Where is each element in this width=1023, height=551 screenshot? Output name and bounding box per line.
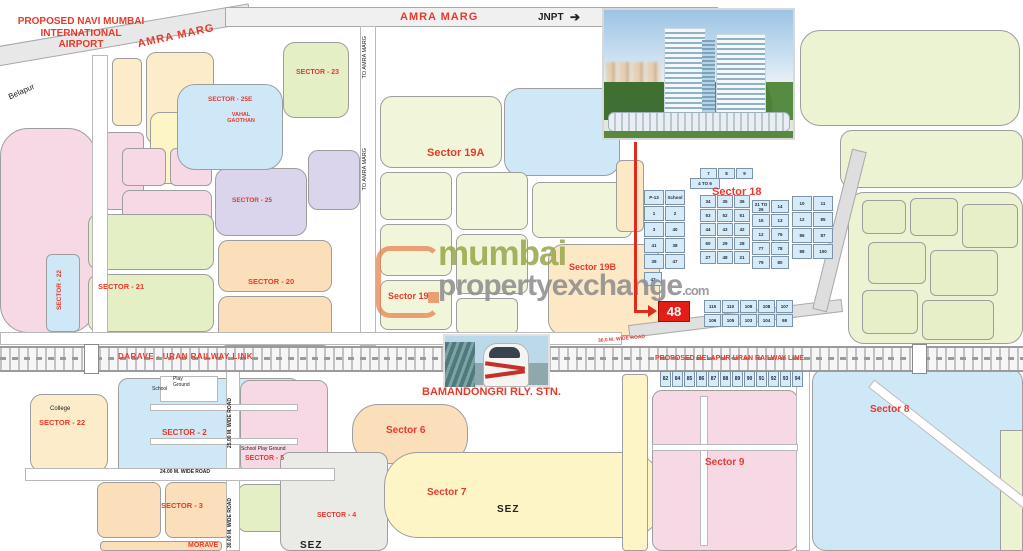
jnpt-label: JNPT — [538, 12, 564, 23]
building-photo — [602, 8, 795, 140]
plot-number: 51 — [734, 209, 750, 222]
map-parcel — [962, 204, 1018, 248]
plot-number: 14 — [771, 200, 789, 213]
proposed-railway-label: PROPOSED BELAPUR-URAN RAILWAY LINE — [655, 355, 804, 363]
strip-plot-number: 91 — [756, 371, 767, 387]
plot-number: 11 — [813, 196, 833, 211]
plot-number: 105 — [722, 314, 739, 327]
to-amra-marg-label-1: TO AMRA MARG — [362, 36, 368, 78]
plot-number: 27 — [700, 251, 716, 264]
school-top-label: School — [152, 387, 167, 393]
strip-plot-number: 90 — [744, 371, 755, 387]
plot-number: 86 — [792, 228, 812, 243]
sector-22b-label: SECTOR - 22 — [39, 419, 85, 428]
white-road — [150, 438, 298, 445]
map-parcel — [652, 390, 798, 551]
map-parcel — [456, 172, 528, 230]
plot-48-marker: 48 — [658, 301, 690, 322]
sector-20-label: SECTOR - 20 — [248, 278, 294, 287]
sector-18-label: Sector 18 — [712, 186, 762, 199]
plot-number: P-13 — [644, 190, 664, 205]
plot-number: 88 — [792, 244, 812, 259]
plot-number: 29 — [717, 237, 733, 250]
plot-number: 42 — [734, 223, 750, 236]
map-parcel — [380, 172, 452, 220]
map-parcel — [280, 452, 388, 551]
map-parcel — [840, 130, 1023, 188]
map-parcel — [868, 242, 926, 284]
sector-25-label: SECTOR - 25 — [232, 197, 272, 204]
plot-number: 78 — [771, 242, 789, 255]
plot-number: 107 — [776, 300, 793, 313]
plot-number: 85 — [813, 212, 833, 227]
sector-8-label: Sector 8 — [870, 404, 909, 416]
plot-number: 13 — [771, 214, 789, 227]
sector-3-label: SECTOR - 3 — [161, 502, 203, 511]
map-parcel — [97, 482, 161, 538]
plot-number: 100 — [813, 244, 833, 259]
plot-number: 76 — [771, 228, 789, 241]
map-parcel — [812, 368, 1023, 551]
photo-ground — [604, 131, 793, 138]
plot-number: 38 — [665, 238, 685, 253]
plot-number: 10 — [792, 196, 812, 211]
plot-number: 43 — [717, 223, 733, 236]
belapur-label: Belapur — [7, 83, 36, 102]
plot-number: 52 — [717, 209, 733, 222]
railway-station-box-right — [912, 344, 927, 374]
white-road — [796, 368, 810, 551]
plot-number: 77 — [752, 242, 770, 255]
photo-tower-core — [702, 40, 715, 116]
plot-number: 40 — [665, 222, 685, 237]
photo-compound-wall — [608, 112, 790, 132]
jnpt-arrow-icon: ➔ — [570, 11, 580, 24]
vahal-gaothan-label: VAHAL GAOTHAN — [219, 112, 263, 125]
school-playground-label: School Play Ground — [241, 447, 285, 453]
map-parcel — [380, 224, 452, 276]
train-windshield — [489, 347, 520, 358]
map-parcel — [922, 300, 994, 340]
map-parcel — [622, 374, 648, 551]
strip-plot-number: 82 — [660, 371, 671, 387]
sector-21-label: SECTOR - 21 — [98, 283, 144, 292]
plot-number: 47 — [665, 254, 685, 269]
strip-plot-number: 85 — [684, 371, 695, 387]
map-parcel — [456, 234, 528, 294]
plot-number: 108 — [758, 300, 775, 313]
sez-label-2: SEZ — [300, 540, 322, 551]
sector-19-label: Sector 19 — [388, 291, 429, 301]
plot-number: 110 — [722, 300, 739, 313]
plot-number: 98 — [776, 314, 793, 327]
map-parcel — [456, 298, 518, 334]
train-photo — [443, 334, 550, 387]
map-parcel — [283, 42, 349, 118]
sector-6-label: Sector 6 — [386, 425, 425, 437]
plot-number: 115 — [704, 300, 721, 313]
white-road — [700, 396, 708, 546]
plot-number: 39 — [644, 254, 664, 269]
plot-number: 103 — [740, 314, 757, 327]
strip-plot-number: 87 — [708, 371, 719, 387]
marker-arrow-line — [634, 142, 637, 312]
plot-number: 1 — [644, 206, 664, 221]
plot-number: 109 — [740, 300, 757, 313]
white-road — [652, 444, 798, 451]
photo-tower-left — [664, 28, 706, 118]
strip-plot-number: 88 — [720, 371, 731, 387]
plot-number: 79 — [752, 256, 770, 269]
playground-top-label: Play Ground — [173, 377, 190, 388]
morave-label: MORAVE — [188, 542, 218, 550]
plot-number: School — [665, 190, 685, 205]
wide-road-24-label: 24.00 M. WIDE ROAD — [160, 470, 210, 476]
plot-number: 21 TO 26 — [752, 200, 770, 213]
amra-marg-top-label: AMRA MARG — [400, 11, 478, 24]
wide-road-25-label: 25.00 M. WIDE ROAD — [228, 398, 234, 448]
map-parcel — [862, 290, 918, 334]
strip-plot-number: 92 — [768, 371, 779, 387]
map-parcel — [112, 58, 142, 126]
white-road — [92, 55, 108, 345]
strip-plot-number: 89 — [732, 371, 743, 387]
sector-22-vertical-label: SECTOR - 22 — [56, 270, 63, 310]
marker-arrowhead-icon — [648, 305, 657, 317]
watermark-tld: .com — [682, 283, 708, 298]
plot-number: 3 — [644, 222, 664, 237]
plot-number: 48 — [717, 251, 733, 264]
sector-7-label: Sector 7 — [427, 487, 466, 499]
plot-number: 2 — [665, 206, 685, 221]
photo-tower-right — [716, 34, 766, 118]
plot-number: 21 — [734, 251, 750, 264]
plot-number: 106 — [704, 314, 721, 327]
plot-number: 41 — [644, 238, 664, 253]
strip-plot-number: 94 — [792, 371, 803, 387]
map-parcel — [930, 250, 998, 296]
map-parcel — [384, 452, 662, 538]
strip-plot-number: 86 — [696, 371, 707, 387]
map-parcel — [380, 280, 452, 330]
wide-road-30-label: 30.00 M. WIDE ROAD — [228, 498, 234, 548]
plot-number: 28 — [734, 237, 750, 250]
map-parcel — [616, 160, 644, 232]
plot-number: 60 — [700, 237, 716, 250]
plot-number: 8 — [718, 168, 735, 179]
sector-25e-label: SECTOR - 25E — [208, 96, 252, 103]
to-amra-marg-label-2: TO AMRA MARG — [362, 148, 368, 190]
plot-number: 104 — [758, 314, 775, 327]
plot-number: 12 — [792, 212, 812, 227]
bamandongri-station-label: BAMANDONGRI RLY. STN. — [422, 386, 561, 399]
map-parcel — [800, 30, 1020, 126]
plot-number: 12 — [752, 228, 770, 241]
airport-label: PROPOSED NAVI MUMBAI INTERNATIONAL AIRPO… — [6, 16, 156, 51]
strip-plot-number: 93 — [780, 371, 791, 387]
sector-9-label: Sector 9 — [705, 457, 744, 469]
plot-number: 87 — [813, 228, 833, 243]
location-map: 789P-13School12340413839474 TO 634353653… — [0, 0, 1023, 551]
white-road — [150, 404, 298, 411]
plot-number: 53 — [700, 209, 716, 222]
darave-railway-label: DARAVE - URAN RAILWAY LINK — [118, 352, 253, 361]
plot-number: 9 — [736, 168, 753, 179]
sector-19b-label: Sector 19B — [569, 262, 616, 272]
strip-plot-number: 84 — [672, 371, 683, 387]
college-label: College — [50, 406, 70, 413]
sector-5-label: SECTOR - 5 — [245, 455, 284, 463]
plot-number: 44 — [700, 223, 716, 236]
plot-number: 80 — [771, 256, 789, 269]
train-platform — [445, 342, 475, 387]
map-parcel — [308, 150, 360, 210]
plot-number: 47 — [644, 272, 662, 286]
sector-2-label: SECTOR - 2 — [162, 428, 207, 437]
map-parcel — [910, 198, 958, 236]
sector-4-label: SECTOR - 4 — [317, 512, 356, 520]
railway-station-box-left — [84, 344, 99, 374]
map-parcel — [122, 148, 166, 186]
plot-number: 15 — [752, 214, 770, 227]
map-parcel — [862, 200, 906, 234]
sector-23-label: SECTOR - 23 — [296, 69, 339, 77]
sez-label-1: SEZ — [497, 504, 519, 515]
sector-19a-label: Sector 19A — [427, 147, 484, 160]
